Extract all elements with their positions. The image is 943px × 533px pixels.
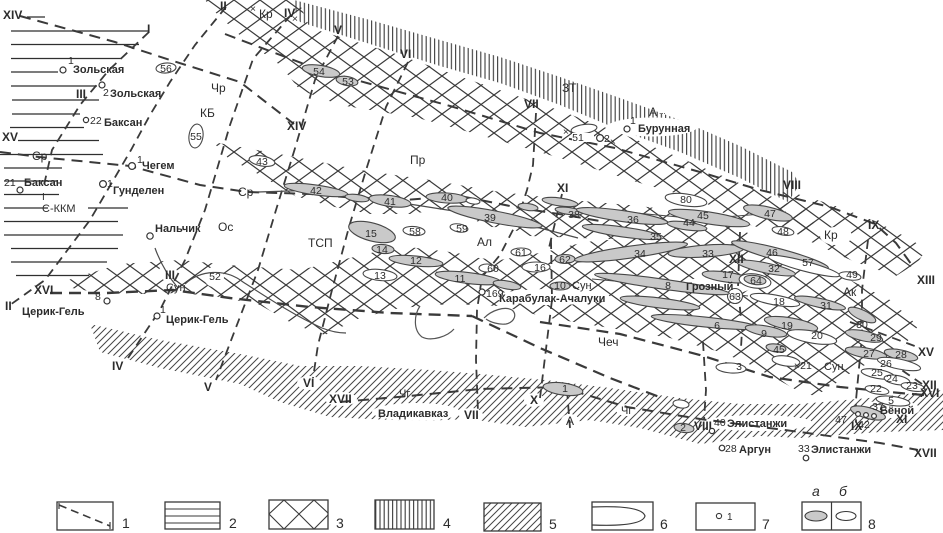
svg-text:Баксан: Баксан <box>104 117 142 129</box>
svg-text:8: 8 <box>665 280 671 292</box>
svg-text:9: 9 <box>761 328 767 340</box>
svg-text:X: X <box>530 393 538 407</box>
svg-text:14: 14 <box>376 244 388 256</box>
svg-text:22: 22 <box>870 383 882 395</box>
svg-text:Бурунная: Бурунная <box>638 123 690 135</box>
svg-text:2: 2 <box>680 422 686 434</box>
svg-text:XIII: XIII <box>917 273 935 287</box>
svg-text:1: 1 <box>562 383 568 395</box>
svg-text:Пр: Пр <box>410 153 426 167</box>
svg-text:Кр: Кр <box>824 228 838 242</box>
svg-text:Ал: Ал <box>477 235 492 249</box>
svg-text:12: 12 <box>410 255 422 267</box>
svg-text:64: 64 <box>750 275 762 287</box>
svg-text:V: V <box>334 23 342 37</box>
svg-text:57: 57 <box>802 257 814 269</box>
svg-text:Грозный: Грозный <box>686 281 733 293</box>
svg-text:33: 33 <box>798 443 810 455</box>
svg-text:×: × <box>563 126 569 138</box>
svg-text:56: 56 <box>160 63 172 75</box>
svg-text:49: 49 <box>846 269 858 281</box>
svg-text:23: 23 <box>906 380 918 392</box>
svg-text:51: 51 <box>572 132 584 144</box>
svg-text:VIII: VIII <box>783 178 801 192</box>
svg-text:ЗТ: ЗТ <box>562 81 577 95</box>
svg-text:2: 2 <box>604 133 610 145</box>
svg-text:а: а <box>812 483 820 499</box>
svg-text:61: 61 <box>515 247 527 259</box>
svg-text:IX: IX <box>851 419 862 433</box>
svg-text:24: 24 <box>886 373 898 385</box>
svg-text:×: × <box>250 3 256 15</box>
svg-text:Сун: Сун <box>166 282 186 294</box>
svg-text:Чеч: Чеч <box>598 335 619 349</box>
svg-text:38: 38 <box>568 209 580 221</box>
svg-text:27: 27 <box>863 348 875 360</box>
svg-text:С-ККМ: С-ККМ <box>42 203 76 215</box>
svg-text:54: 54 <box>313 66 325 78</box>
svg-text:Церик-Гель: Церик-Гель <box>22 306 85 318</box>
svg-text:III: III <box>76 87 86 101</box>
svg-text:III: III <box>165 268 175 282</box>
svg-text:40: 40 <box>714 417 726 429</box>
svg-text:36: 36 <box>627 214 639 226</box>
svg-text:62: 62 <box>559 254 571 266</box>
svg-text:IV: IV <box>112 359 123 373</box>
svg-text:Бёной: Бёной <box>880 405 914 417</box>
svg-text:VII: VII <box>524 97 539 111</box>
svg-text:39: 39 <box>484 212 496 224</box>
svg-text:3: 3 <box>736 361 742 373</box>
svg-text:Нальчик: Нальчик <box>155 223 201 235</box>
svg-text:Чг: Чг <box>399 388 410 400</box>
svg-text:42: 42 <box>310 185 322 197</box>
svg-text:Владикавказ: Владикавказ <box>378 408 449 420</box>
svg-text:8: 8 <box>95 291 101 303</box>
svg-text:4: 4 <box>443 515 451 531</box>
svg-text:1: 1 <box>630 115 636 127</box>
svg-text:32: 32 <box>768 263 780 275</box>
svg-text:15: 15 <box>365 228 377 240</box>
svg-text:28: 28 <box>895 349 907 361</box>
svg-text:XVII: XVII <box>914 446 937 460</box>
svg-text:XVI: XVI <box>34 283 53 297</box>
svg-text:58: 58 <box>409 226 421 238</box>
svg-text:Элистанжи: Элистанжи <box>811 444 871 456</box>
svg-text:10: 10 <box>554 280 566 292</box>
svg-text:43: 43 <box>256 156 268 168</box>
svg-text:45: 45 <box>697 210 709 222</box>
svg-text:25: 25 <box>871 367 883 379</box>
svg-text:44: 44 <box>683 217 695 229</box>
svg-text:1: 1 <box>727 512 733 523</box>
svg-text:7: 7 <box>762 516 770 532</box>
svg-text:17: 17 <box>722 269 734 281</box>
svg-text:18: 18 <box>773 296 785 308</box>
svg-text:Ср: Ср <box>32 149 48 163</box>
svg-text:б: б <box>839 483 848 499</box>
svg-text:А: А <box>649 105 657 119</box>
svg-text:80: 80 <box>680 194 692 206</box>
svg-text:46: 46 <box>766 247 778 259</box>
svg-text:2: 2 <box>229 515 237 531</box>
svg-text:I: I <box>42 192 45 203</box>
svg-text:16: 16 <box>534 262 546 274</box>
svg-text:52: 52 <box>209 271 221 283</box>
svg-text:XIV: XIV <box>3 8 22 22</box>
svg-text:XVI: XVI <box>920 386 939 400</box>
svg-text:КБ: КБ <box>200 106 215 120</box>
svg-text:Зольская: Зольская <box>110 88 161 100</box>
svg-text:Карабулак-Ачалуки: Карабулак-Ачалуки <box>499 293 605 305</box>
svg-text:Аргун: Аргун <box>739 444 771 456</box>
svg-text:V: V <box>204 380 212 394</box>
svg-text:31: 31 <box>820 300 832 312</box>
svg-text:28: 28 <box>725 443 737 455</box>
svg-text:59: 59 <box>456 223 468 235</box>
svg-text:VII: VII <box>464 408 479 422</box>
svg-text:40: 40 <box>441 192 453 204</box>
svg-text:Кр: Кр <box>259 7 273 21</box>
svg-text:19: 19 <box>781 320 793 332</box>
svg-text:6: 6 <box>714 320 720 332</box>
svg-text:45: 45 <box>773 344 785 356</box>
svg-text:XV: XV <box>2 130 18 144</box>
svg-text:А: А <box>566 414 574 428</box>
svg-text:47: 47 <box>835 414 847 426</box>
svg-text:22: 22 <box>90 115 102 127</box>
svg-text:33: 33 <box>702 248 714 260</box>
svg-text:IX: IX <box>868 218 879 232</box>
svg-text:Зольская: Зольская <box>73 64 124 76</box>
svg-text:13: 13 <box>374 270 386 282</box>
svg-text:ТСП: ТСП <box>308 236 333 250</box>
svg-text:53: 53 <box>342 76 354 88</box>
svg-text:XVII: XVII <box>329 392 352 406</box>
svg-text:II: II <box>220 0 227 13</box>
svg-text:30: 30 <box>856 319 868 331</box>
svg-text:Чр: Чр <box>211 81 226 95</box>
svg-text:35: 35 <box>650 231 662 243</box>
svg-text:20: 20 <box>811 330 823 342</box>
svg-text:Сун: Сун <box>572 280 592 292</box>
svg-text:×: × <box>794 360 800 372</box>
svg-text:21: 21 <box>800 360 812 372</box>
svg-text:Гунделен: Гунделен <box>113 185 164 197</box>
svg-text:×: × <box>610 136 616 148</box>
svg-text:6: 6 <box>660 516 668 532</box>
svg-text:...: ... <box>659 107 666 116</box>
svg-text:41: 41 <box>384 196 396 208</box>
svg-text:8: 8 <box>868 516 876 532</box>
svg-text:48: 48 <box>777 226 789 238</box>
svg-text:Ак: Ак <box>843 285 857 299</box>
svg-text:21: 21 <box>4 177 16 189</box>
svg-text:Чг: Чг <box>621 405 632 417</box>
svg-text:IV: IV <box>284 6 295 20</box>
svg-text:XI: XI <box>557 181 568 195</box>
svg-text:VI: VI <box>303 376 314 390</box>
svg-text:Чегем: Чегем <box>142 160 175 172</box>
svg-text:Ос: Ос <box>218 220 233 234</box>
svg-text:VI: VI <box>400 47 411 61</box>
svg-text:Баксан: Баксан <box>24 177 62 189</box>
svg-text:29: 29 <box>870 332 882 344</box>
svg-text:I: I <box>147 22 150 36</box>
svg-text:55: 55 <box>190 131 202 143</box>
svg-text:Церик-Гель: Церик-Гель <box>166 314 229 326</box>
svg-text:5: 5 <box>549 516 557 532</box>
svg-text:60: 60 <box>487 263 499 275</box>
svg-text:47: 47 <box>764 208 776 220</box>
svg-text:XV: XV <box>918 345 934 359</box>
svg-text:1: 1 <box>122 515 130 531</box>
svg-text:Элистанжи: Элистанжи <box>727 418 787 430</box>
svg-text:3: 3 <box>336 515 344 531</box>
svg-text:II: II <box>5 299 12 313</box>
svg-text:XII: XII <box>729 252 744 266</box>
svg-text:Сун: Сун <box>824 361 844 373</box>
svg-text:34: 34 <box>634 248 646 260</box>
svg-text:XIV: XIV <box>287 119 306 133</box>
svg-text:11: 11 <box>455 273 466 285</box>
svg-text:Ср: Ср <box>238 185 254 199</box>
svg-text:2: 2 <box>103 87 109 99</box>
